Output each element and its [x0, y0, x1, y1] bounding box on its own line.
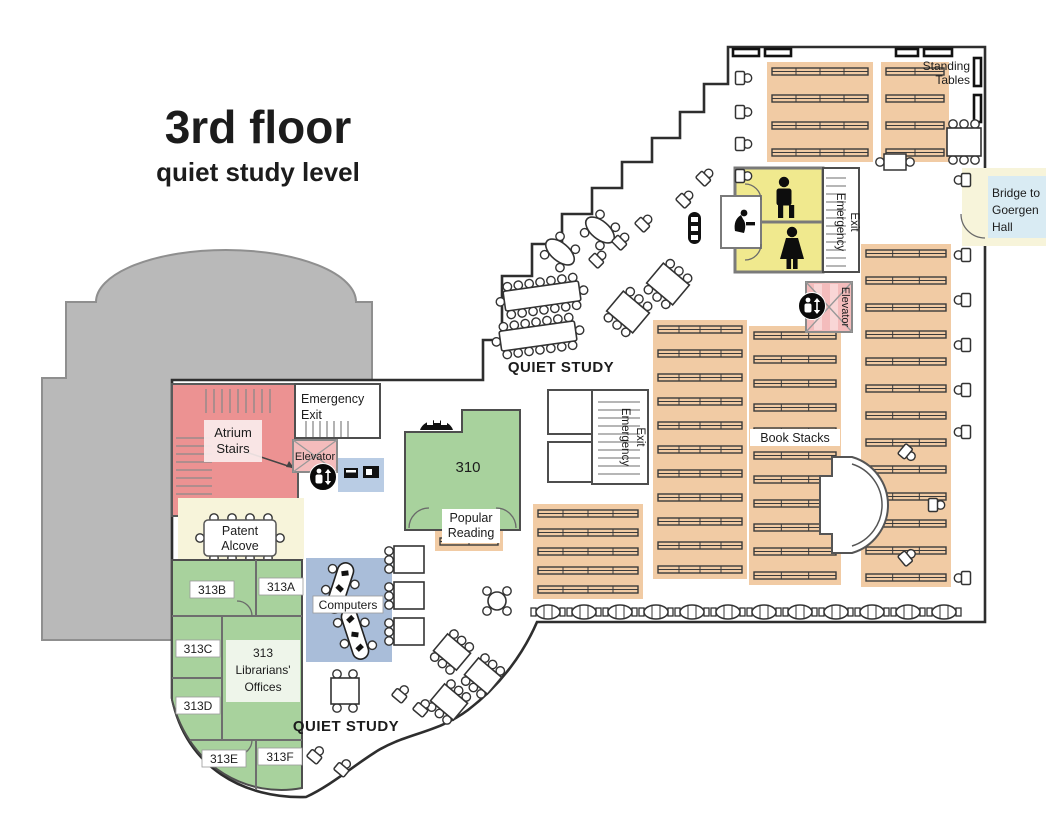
emergency-exit-upper-line1: Emergency [834, 193, 846, 251]
study-carrel [736, 138, 752, 151]
popular-reading-line1: Popular [449, 511, 492, 525]
book-stack-group [653, 320, 747, 579]
study-carrel [954, 384, 970, 397]
side-table [385, 618, 424, 645]
librarians-offices-line1: 313 [253, 646, 273, 660]
elevator-icon [310, 464, 337, 491]
patent-alcove-label-line2: Alcove [221, 539, 259, 553]
room-313a-label: 313A [267, 580, 295, 594]
printer-station [338, 458, 384, 492]
study-carrel [954, 174, 970, 187]
quiet-study-label-upper: QUIET STUDY [508, 359, 614, 376]
bridge-label-line1: Bridge to [992, 186, 1040, 200]
utility-room-2 [548, 442, 592, 482]
atrium-stairs-label-line1: Atrium [214, 425, 252, 440]
computers-label: Computers [319, 598, 378, 612]
page-subtitle: quiet study level [156, 157, 360, 187]
popular-reading-line2: Reading [448, 526, 495, 540]
elevator-upper-label: Elevator [839, 287, 851, 328]
emergency-exit-mid-line1: Emergency [619, 408, 631, 466]
study-carrel [954, 249, 970, 262]
standing-tables-label-line2: Tables [935, 73, 970, 87]
floorplan-svg: Bridge to Goergen Hall Standing Tables [0, 0, 1053, 832]
quiet-study-label-lower: QUIET STUDY [293, 718, 399, 735]
librarians-offices-line3: Offices [244, 680, 281, 694]
bridge-label-line2: Goergen [992, 203, 1039, 217]
table-six-chairs [947, 120, 981, 164]
room-313c-label: 313C [184, 642, 213, 656]
room-313f-label: 313F [266, 750, 293, 764]
elevator-left-label: Elevator [295, 451, 336, 463]
standing-tables-label-line1: Standing [923, 59, 970, 73]
side-table [385, 582, 424, 609]
emergency-exit-upper-line2: Exit [848, 212, 860, 232]
study-carrel [736, 72, 752, 85]
librarians-offices-line2: Librarians' [236, 663, 291, 677]
study-carrel [954, 572, 970, 585]
book-stack-group [749, 326, 841, 585]
room-310-label: 310 [455, 459, 480, 476]
study-carrel [736, 170, 752, 183]
book-stack-group [533, 504, 643, 599]
elevator-icon [799, 293, 826, 320]
book-stack-group [767, 62, 873, 162]
emergency-exit-mid-line2: Exit [634, 427, 646, 447]
study-carrel [954, 339, 970, 352]
room-313b-label: 313B [198, 583, 226, 597]
atrium-stairs-label-line2: Stairs [216, 441, 250, 456]
floorplan: Bridge to Goergen Hall Standing Tables [0, 0, 1053, 832]
room-313d-label: 313D [184, 699, 213, 713]
emergency-exit-left-line1: Emergency [301, 392, 365, 406]
book-stacks-label: Book Stacks [760, 431, 829, 445]
emergency-exit-left-line2: Exit [301, 408, 322, 422]
patent-alcove-label-line1: Patent [222, 524, 259, 538]
study-carrel [929, 499, 945, 512]
side-table [385, 546, 424, 573]
bridge-label-line3: Hall [992, 220, 1013, 234]
study-carrel [954, 426, 970, 439]
study-carrel [736, 106, 752, 119]
kiosk-desk-upper [688, 212, 701, 244]
utility-room-1 [548, 390, 592, 434]
room-313e-label: 313E [210, 752, 238, 766]
study-carrel [954, 294, 970, 307]
page-title: 3rd floor [165, 101, 352, 153]
